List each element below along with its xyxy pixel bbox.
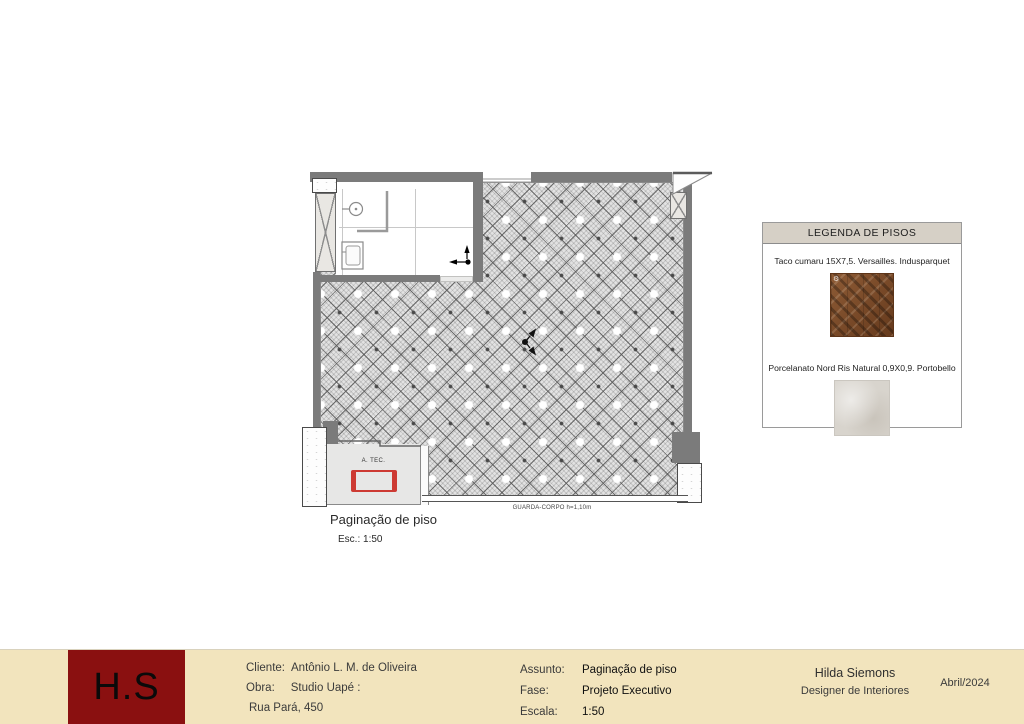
- legend-spacer: [763, 337, 961, 351]
- subject-value: Paginação de piso: [582, 664, 677, 676]
- title-block: H.S Cliente:Antônio L. M. de Oliveira Ob…: [0, 649, 1024, 724]
- client-line: Cliente:Antônio L. M. de Oliveira: [246, 658, 417, 678]
- porcelain-tile-swatch: [834, 380, 890, 436]
- scale-value: 1:50: [582, 706, 604, 718]
- work-value: Studio Uapé :: [291, 682, 361, 694]
- designer-name: Hilda Siemons: [788, 666, 922, 680]
- scale-line: Escala:1:50: [520, 702, 677, 723]
- balcony-window-line: [338, 441, 421, 446]
- drawing-scale: Esc.: 1:50: [338, 534, 382, 545]
- company-logo: H.S: [68, 650, 185, 724]
- client-label: Cliente:: [246, 662, 285, 674]
- vanity-symbol: [342, 242, 363, 269]
- drawing-title: Paginação de piso: [330, 512, 437, 527]
- work-line: Obra:Studio Uapé :: [246, 678, 417, 698]
- sheet-info: Assunto:Paginação de piso Fase:Projeto E…: [520, 660, 677, 723]
- designer-info: Hilda Siemons Designer de Interiores: [788, 650, 922, 697]
- client-info: Cliente:Antônio L. M. de Oliveira Obra:S…: [246, 658, 417, 718]
- entry-door-swing: [673, 173, 712, 194]
- address-line: Rua Pará, 450: [246, 698, 417, 718]
- subject-label: Assunto:: [520, 660, 582, 681]
- tile-start-arrows-parquet: [522, 329, 536, 356]
- legend-item-label: Taco cumaru 15X7,5. Versailles. Induspar…: [763, 256, 961, 266]
- shower-symbol: [342, 203, 363, 216]
- plan-symbols-overlay: [300, 160, 720, 520]
- phase-label: Fase:: [520, 681, 582, 702]
- drawing-sheet: A. TEC. GUARDA-CORPO h=1,10m: [0, 0, 1024, 724]
- phase-value: Projeto Executivo: [582, 685, 672, 697]
- gear-icon: ⚙: [833, 276, 839, 283]
- client-value: Antônio L. M. de Oliveira: [291, 662, 417, 674]
- window-lines: [483, 179, 531, 182]
- work-label: Obra:: [246, 682, 275, 694]
- floor-legend: LEGENDA DE PISOS Taco cumaru 15X7,5. Ver…: [762, 222, 962, 428]
- wood-parquet-swatch: ⚙: [830, 273, 894, 337]
- scale-label: Escala:: [520, 702, 582, 723]
- tile-start-arrows-bathroom: [449, 245, 471, 265]
- sheet-date: Abril/2024: [922, 677, 1008, 689]
- legend-title: LEGENDA DE PISOS: [763, 223, 961, 244]
- designer-title: Designer de Interiores: [788, 685, 922, 697]
- legend-item-label: Porcelanato Nord Ris Natural 0,9X0,9. Po…: [763, 363, 961, 373]
- subject-line: Assunto:Paginação de piso: [520, 660, 677, 681]
- phase-line: Fase:Projeto Executivo: [520, 681, 677, 702]
